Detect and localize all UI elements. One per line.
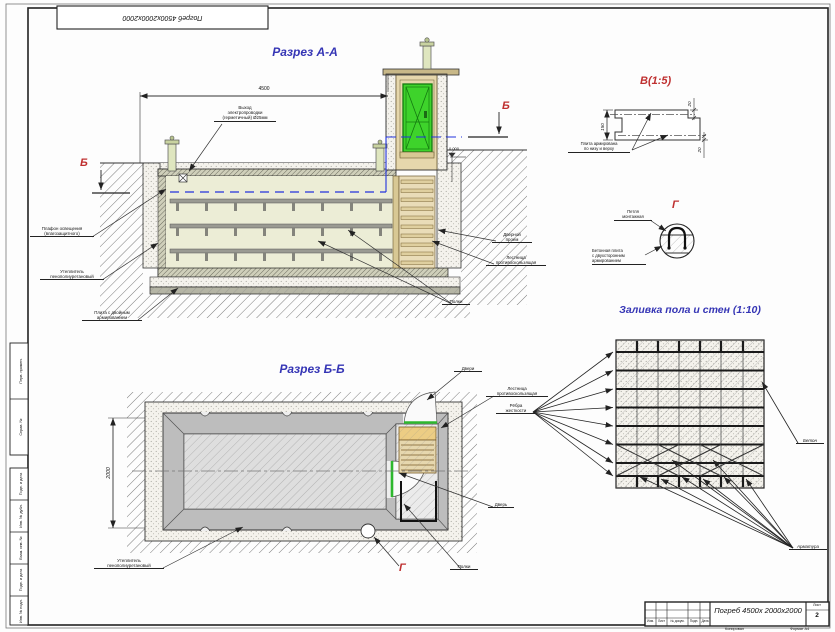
floor-plan bbox=[184, 434, 386, 509]
section-bb-drawing bbox=[108, 372, 494, 569]
shelves-bb-label: Полки bbox=[450, 564, 478, 570]
marker-b-right: Б bbox=[502, 100, 510, 113]
insulation-aa-label: Утеплительпенополиуретановый bbox=[40, 269, 104, 280]
tb-col-data: Дата bbox=[700, 620, 710, 624]
sheet-number: 2 bbox=[807, 612, 827, 620]
side-cell-2: Подп. и дата bbox=[19, 472, 23, 495]
cover-slab bbox=[158, 169, 396, 176]
concrete-slab-label: Бетонная плитас двухстороннимармирование… bbox=[592, 249, 646, 265]
doorway-label: Двернойпроем bbox=[492, 232, 532, 243]
concrete-leader bbox=[762, 382, 798, 443]
side-cell-5: Подп. и дата bbox=[19, 568, 23, 591]
detail-v-title: В(1:5) bbox=[640, 75, 671, 88]
tb-col-dokum: № докум. bbox=[667, 620, 688, 624]
vent-pipe-tower bbox=[420, 38, 434, 69]
concrete-label: Бетон bbox=[796, 438, 824, 444]
elevation-text: 0.000 bbox=[449, 147, 459, 152]
corner-stamp-text: Погреб 4500х2000х2000 bbox=[57, 6, 268, 29]
ladder-plan bbox=[399, 427, 436, 473]
ribs-fan-arrows bbox=[533, 352, 613, 476]
detail-g-drawing bbox=[645, 220, 696, 258]
side-cell-0: Перв. примен. bbox=[19, 358, 23, 383]
dim-150-text: 150 bbox=[600, 123, 605, 131]
insulation-bb-label: Утеплительпенополиуретановый bbox=[94, 558, 164, 569]
note-copied: Копировал bbox=[725, 627, 744, 631]
side-cell-3: Инв. № дубл. bbox=[19, 504, 23, 528]
section-aa-title: Разрез А-А bbox=[250, 45, 360, 59]
title-block-name: Погреб 4500х 2000х2000 bbox=[712, 607, 804, 616]
floor-slab bbox=[158, 268, 448, 277]
side-cell-4: Взам. инв. № bbox=[19, 536, 23, 560]
concrete-collar-right bbox=[437, 163, 461, 268]
dim-20-bottom bbox=[702, 132, 708, 158]
detail-g-title: Г bbox=[672, 199, 679, 212]
marker-b-left: Б bbox=[80, 157, 88, 170]
loop-label: Петлямонтажная bbox=[614, 210, 652, 221]
cellar-interior bbox=[166, 176, 396, 268]
green-door[interactable] bbox=[403, 84, 432, 152]
section-aa-drawing bbox=[92, 38, 527, 320]
rebar-label: Арматура bbox=[789, 544, 827, 550]
side-cell-6: Инв. № подл. bbox=[19, 599, 23, 623]
dim-20-bottom-text: 20 bbox=[697, 147, 702, 154]
door-handle bbox=[424, 111, 427, 118]
tb-col-izm: Изм. bbox=[645, 620, 656, 624]
tb-col-list: Лист bbox=[656, 620, 667, 624]
shelves-aa-label: Полки bbox=[442, 299, 470, 305]
note-format: Формат А4 bbox=[790, 627, 809, 631]
doors-label: Двери bbox=[454, 366, 482, 372]
drawing-sheet: 150 20 20 2000 Перв. примен. Справ. № По… bbox=[0, 0, 835, 632]
pouring-grid bbox=[533, 340, 798, 548]
ladder-aa-label: Лестницапротивоскользящая bbox=[486, 255, 546, 266]
tb-col-podp: Подп. bbox=[688, 620, 700, 624]
slab-aa-label: Плита с двойнымармированием bbox=[82, 310, 142, 321]
concrete-collar-left bbox=[143, 163, 160, 268]
ladder-bb-label: Лестницапротивоскользящая bbox=[486, 386, 548, 397]
detail-v-label: Плита армированапо низу и верху bbox=[568, 142, 630, 153]
detail-g-marker bbox=[361, 524, 375, 538]
dim-4500-text: 4500 bbox=[244, 87, 284, 93]
dim-2000-text: 2000 bbox=[106, 467, 112, 480]
left-wall bbox=[158, 169, 166, 284]
door-bb-label: Дверь bbox=[488, 502, 514, 508]
sheet-label: Лист bbox=[807, 603, 827, 607]
side-cell-1: Справ. № bbox=[19, 418, 23, 435]
wiring-label: Выходэлектропроводки(герметичный) Ø25мм bbox=[214, 105, 276, 122]
ladder-elevation bbox=[399, 176, 435, 268]
floor-insulation bbox=[150, 277, 460, 287]
pouring-title: Заливка пола и стен (1:10) bbox=[600, 304, 780, 316]
lamp-label: Плафон освещения(влагозащитного) bbox=[30, 226, 94, 237]
dim-20-top-text: 20 bbox=[687, 101, 692, 108]
marker-g-plan: Г bbox=[399, 562, 406, 575]
dim-20-top bbox=[690, 98, 698, 120]
section-bb-title: Разрез Б-Б bbox=[262, 362, 362, 376]
ribs-label: Рёбражесткости bbox=[496, 403, 536, 414]
section-marker-b-right bbox=[468, 112, 508, 137]
outlet-symbol bbox=[179, 174, 187, 182]
